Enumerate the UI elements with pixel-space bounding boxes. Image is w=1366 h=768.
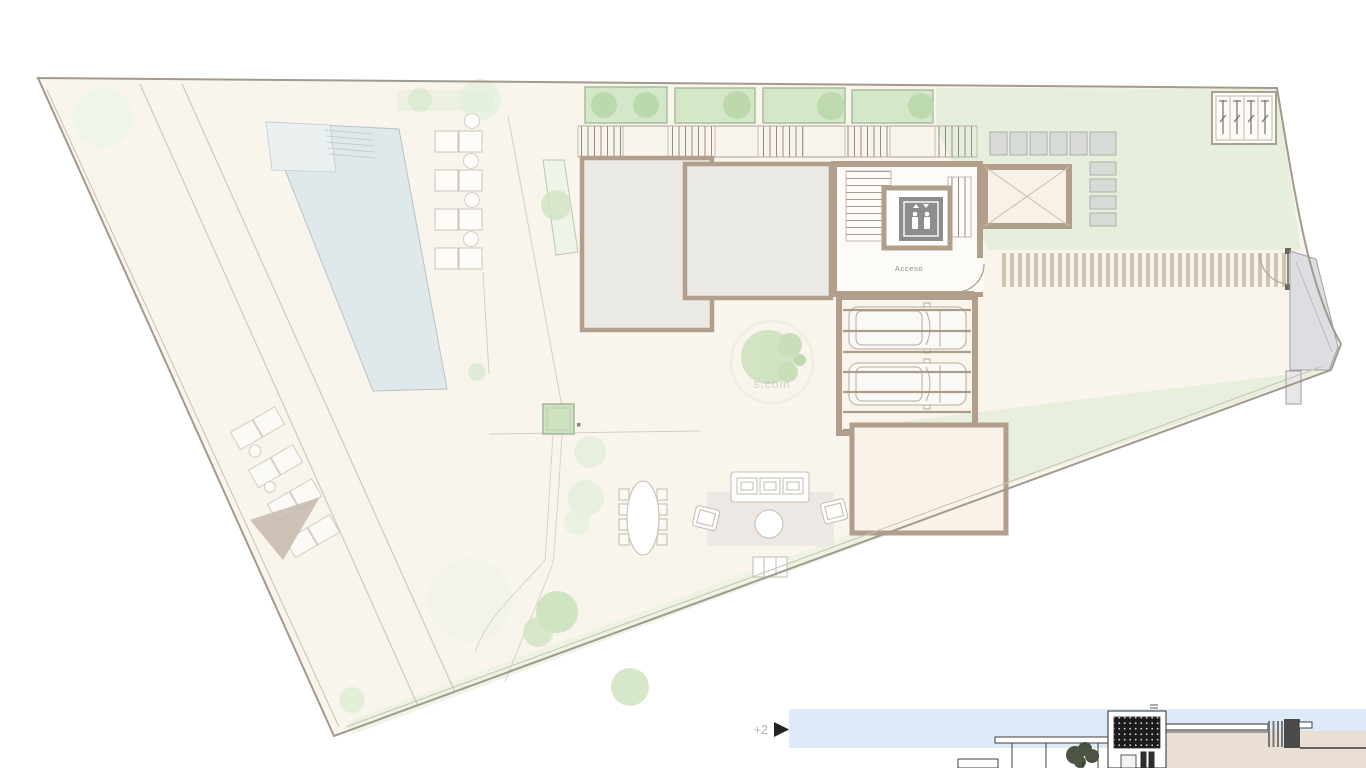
lounger-pair [435,209,482,230]
pergola-slats [935,126,977,157]
dark-wall [1284,719,1300,748]
access-label: Acceso [895,264,923,273]
pergola-slats [758,126,803,157]
faint-tree [408,88,432,112]
level-label: +2 [754,723,768,737]
bench [753,557,787,577]
hedge-tree [541,190,571,220]
side-table [249,445,261,457]
entry-splay [1290,251,1338,370]
driveway-slats [998,253,1288,287]
courtyard-tree [741,330,806,384]
lounger-pair [435,248,482,269]
sofa [731,472,809,502]
access-block: Acceso [834,164,984,294]
roof-slab [1166,724,1268,730]
pergola-slats [668,126,715,157]
dining-table [627,481,659,555]
elevator-icon [899,197,943,241]
trellis-structure [1212,92,1276,144]
pool-shallow-shelf [266,122,336,172]
elevation-door [1121,755,1136,768]
roof-volume-right [685,164,831,298]
side-table [465,114,480,129]
skylight-box [985,167,1069,226]
carport [839,297,975,433]
car [849,359,966,409]
side-table [465,193,480,208]
pergola-slats [578,126,623,157]
marker-dot [577,423,581,427]
lounger-pair [435,131,482,152]
pergola-slats [845,126,890,157]
coffee-table [755,510,783,538]
elevation-strip: +2 [754,705,1366,768]
lounger-pair [435,170,482,191]
site-plan-page: Acceso [0,0,1366,768]
boundary-wall-stub [1286,371,1301,404]
side-table [464,232,479,247]
elevation-ground [1166,731,1366,768]
watermark: s.com [753,377,790,391]
side-table [464,154,479,169]
play-arrow-icon [774,722,789,737]
planter-square [543,404,574,434]
side-table [265,482,276,493]
site-plan-drawing: Acceso [0,0,1366,768]
